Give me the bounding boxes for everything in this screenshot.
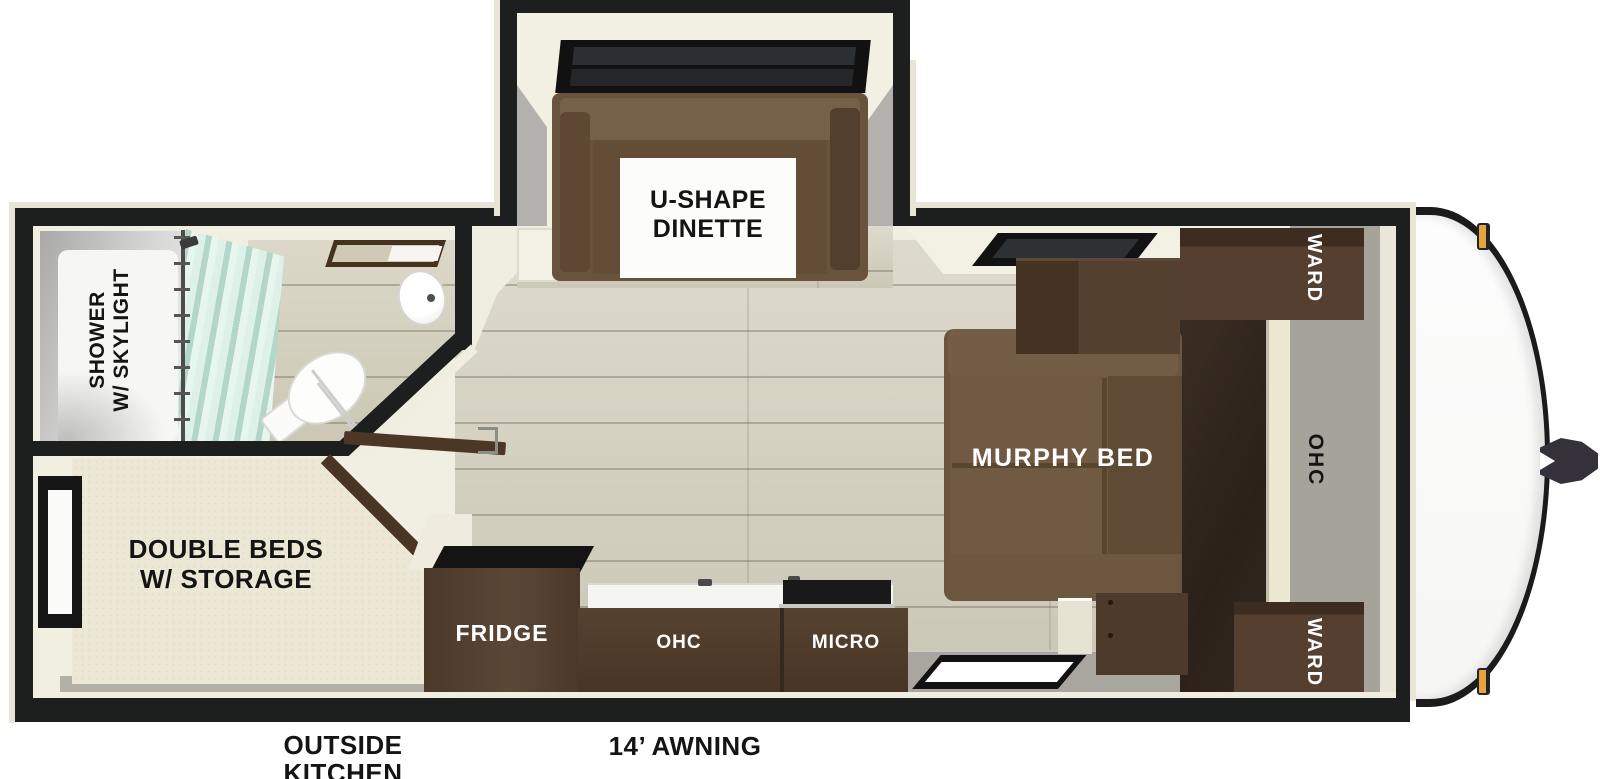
slideout-wall (500, 0, 910, 13)
murphy-bed-board (1266, 312, 1290, 610)
dinette-label: U-SHAPE DINETTE (620, 186, 796, 244)
dinette-side-cushion (830, 108, 860, 270)
shower-label: SHOWER W/ SKYLIGHT (86, 220, 134, 460)
step-shelf (1058, 598, 1092, 654)
dinette-label-line2: DINETTE (653, 215, 763, 243)
bathroom-bedroom-wall (33, 441, 348, 456)
marker-light-top (1477, 223, 1490, 250)
shower-label-line2: W/ SKYLIGHT (110, 268, 133, 411)
bathroom-vanity-top (388, 246, 443, 261)
double-beds-label-line1: DOUBLE BEDS (129, 534, 324, 564)
wardrobe-bottom (1234, 602, 1364, 692)
dinette-back-cushion (560, 98, 860, 140)
micro-label: MICRO (784, 632, 908, 654)
top-wall-rear (15, 208, 517, 226)
outside-kitchen-line2: KITCHEN (283, 758, 402, 779)
double-beds-label-line2: W/ STORAGE (140, 564, 312, 594)
slideout-wall (893, 0, 910, 226)
roof-vent-glass (992, 239, 1139, 258)
slideout-wall (500, 0, 517, 226)
dinette-window-pane (572, 47, 856, 65)
front-interior-wall (1380, 226, 1396, 692)
dinette-window-pane (570, 69, 854, 86)
wardrobe-top-label: WARD (1304, 234, 1324, 296)
marker-light-bottom (1477, 668, 1490, 695)
dinette-label-card: U-SHAPE DINETTE (620, 158, 796, 278)
shower-curtain-hooks (174, 236, 190, 438)
wardrobe-bottom-label: WARD (1304, 618, 1324, 680)
top-wall-front (893, 208, 1410, 226)
kitchen-ohc-label: OHC (578, 632, 780, 654)
outside-kitchen-line1: OUTSIDE (283, 730, 402, 760)
double-beds-label: DOUBLE BEDS W/ STORAGE (70, 534, 382, 594)
faucet-icon (698, 579, 712, 586)
rv-floorplan: SHOWER W/ SKYLIGHT DOUBLE BEDS W/ STORAG… (0, 0, 1600, 779)
cabinet-knob-icon (1108, 600, 1113, 605)
front-ohc-label: OHC (1305, 433, 1325, 487)
cabinet-knob-icon (1108, 633, 1113, 638)
front-cap (1416, 207, 1550, 707)
dinette-side-cushion (560, 112, 590, 272)
outside-kitchen-label: OUTSIDE KITCHEN (233, 731, 453, 779)
fridge-label: FRIDGE (424, 620, 580, 647)
overhead-cabinet (1016, 258, 1180, 354)
entry-door (912, 655, 1087, 689)
murphy-bed-label: MURPHY BED (944, 444, 1182, 473)
sink-drain-icon (427, 294, 435, 302)
door-handle-icon (478, 427, 498, 454)
bedroom-window-glass (48, 490, 72, 614)
awning-label: 14’ AWNING (565, 731, 805, 762)
shower-label-line1: SHOWER (86, 291, 109, 389)
slideout-trim (910, 60, 916, 216)
wardrobe-top (1180, 228, 1364, 320)
dinette-window (555, 40, 871, 93)
dinette-side-shelf (517, 228, 557, 282)
exterior-trim-front (1410, 207, 1416, 701)
dinette-label-line1: U-SHAPE (650, 186, 766, 214)
